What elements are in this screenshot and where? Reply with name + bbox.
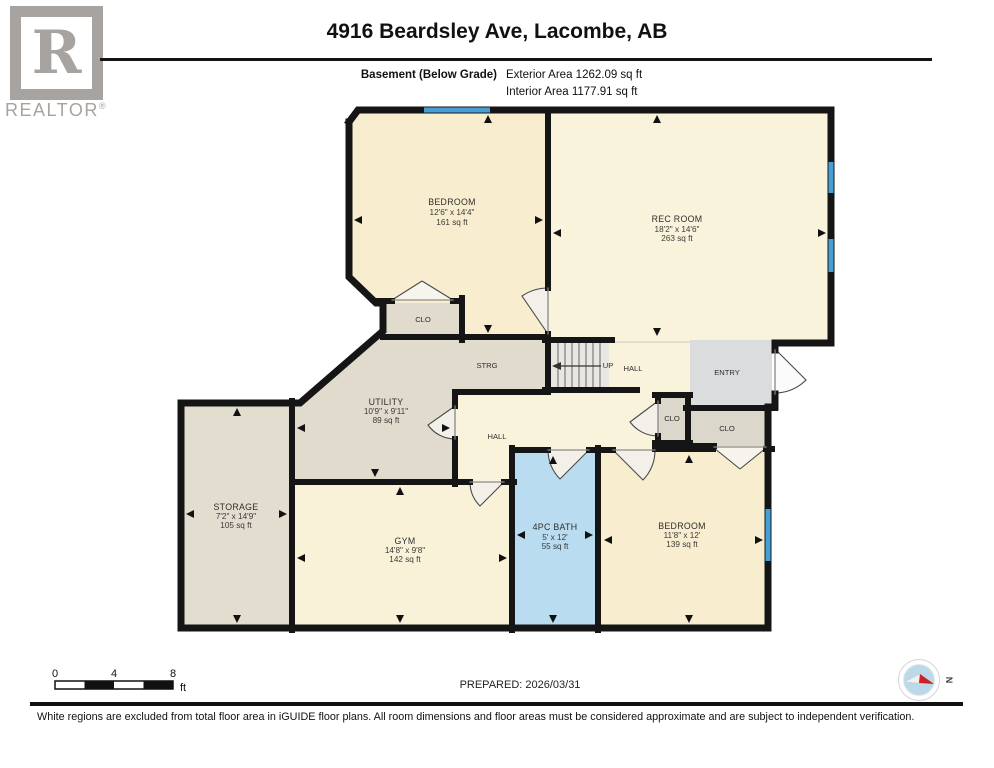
title-divider bbox=[100, 58, 932, 61]
storage-area: 105 sq ft bbox=[220, 521, 252, 530]
bath-dims: 5' x 12' bbox=[542, 533, 568, 542]
prepared-date: PREPARED: 2026/03/31 bbox=[460, 679, 581, 691]
floor-plan-drawing: BEDROOM 12'6" x 14'4" 161 sq ft REC ROOM… bbox=[0, 0, 994, 768]
compass: N bbox=[899, 660, 955, 701]
page-title: 4916 Beardsley Ave, Lacombe, AB bbox=[0, 20, 994, 44]
floor-plan-page: BEDROOM 12'6" x 14'4" 161 sq ft REC ROOM… bbox=[0, 0, 994, 768]
entry-exterior-door bbox=[775, 349, 806, 393]
gym-name: GYM bbox=[395, 536, 416, 546]
scale-bar: 0 4 8 ft bbox=[52, 668, 186, 694]
strg-label: STRG bbox=[476, 361, 497, 370]
hall-upper-label: HALL bbox=[624, 364, 643, 373]
rec-room-name: REC ROOM bbox=[652, 214, 703, 224]
bedroom-tl-area: 161 sq ft bbox=[436, 218, 468, 227]
stairs-up-label: UP bbox=[603, 361, 614, 370]
storage-name: STORAGE bbox=[214, 502, 259, 512]
disclaimer-text: White regions are excluded from total fl… bbox=[37, 711, 972, 723]
bedroom-br-area: 139 sq ft bbox=[666, 540, 698, 549]
bedroom-tl-name: BEDROOM bbox=[428, 197, 476, 207]
realtor-wordmark-text: REALTOR bbox=[5, 100, 99, 120]
clo-hall-label: CLO bbox=[664, 414, 680, 423]
bath-area: 55 sq ft bbox=[542, 542, 570, 551]
clo-bedroom-tl-label: CLO bbox=[415, 315, 431, 324]
exterior-area: Exterior Area 1262.09 sq ft bbox=[506, 69, 642, 81]
scale-unit: ft bbox=[180, 682, 186, 694]
bedroom-br-dims: 11'8" x 12' bbox=[664, 531, 701, 540]
compass-north-label: N bbox=[944, 677, 954, 684]
rec-room-area: 263 sq ft bbox=[661, 234, 693, 243]
staircase bbox=[551, 343, 609, 387]
scale-label-4: 4 bbox=[111, 668, 117, 680]
rec-room-dims: 18'2" x 14'6" bbox=[655, 225, 700, 234]
bedroom-br-name: BEDROOM bbox=[658, 521, 706, 531]
entry-label: ENTRY bbox=[714, 368, 740, 377]
gym-area: 142 sq ft bbox=[389, 555, 421, 564]
storage-dims: 7'2" x 14'9" bbox=[216, 512, 256, 521]
realtor-wordmark: REALTOR® bbox=[5, 100, 135, 121]
scale-label-8: 8 bbox=[170, 668, 176, 680]
hall-lower-label: HALL bbox=[488, 432, 507, 441]
interior-area: Interior Area 1177.91 sq ft bbox=[506, 86, 637, 98]
bedroom-tl-dims: 12'6" x 14'4" bbox=[430, 208, 475, 217]
scale-label-0: 0 bbox=[52, 668, 58, 680]
clo-bedroom-br-label: CLO bbox=[719, 424, 735, 433]
utility-name: UTILITY bbox=[369, 397, 404, 407]
gym-dims: 14'8" x 9'8" bbox=[385, 546, 425, 555]
realtor-registered-mark: ® bbox=[99, 101, 107, 111]
bath-name: 4PC BATH bbox=[533, 522, 578, 532]
utility-area: 89 sq ft bbox=[373, 416, 401, 425]
floor-label: Basement (Below Grade) bbox=[0, 69, 497, 81]
footer-rule bbox=[30, 702, 963, 706]
utility-dims: 10'9" x 9'11" bbox=[364, 407, 408, 416]
